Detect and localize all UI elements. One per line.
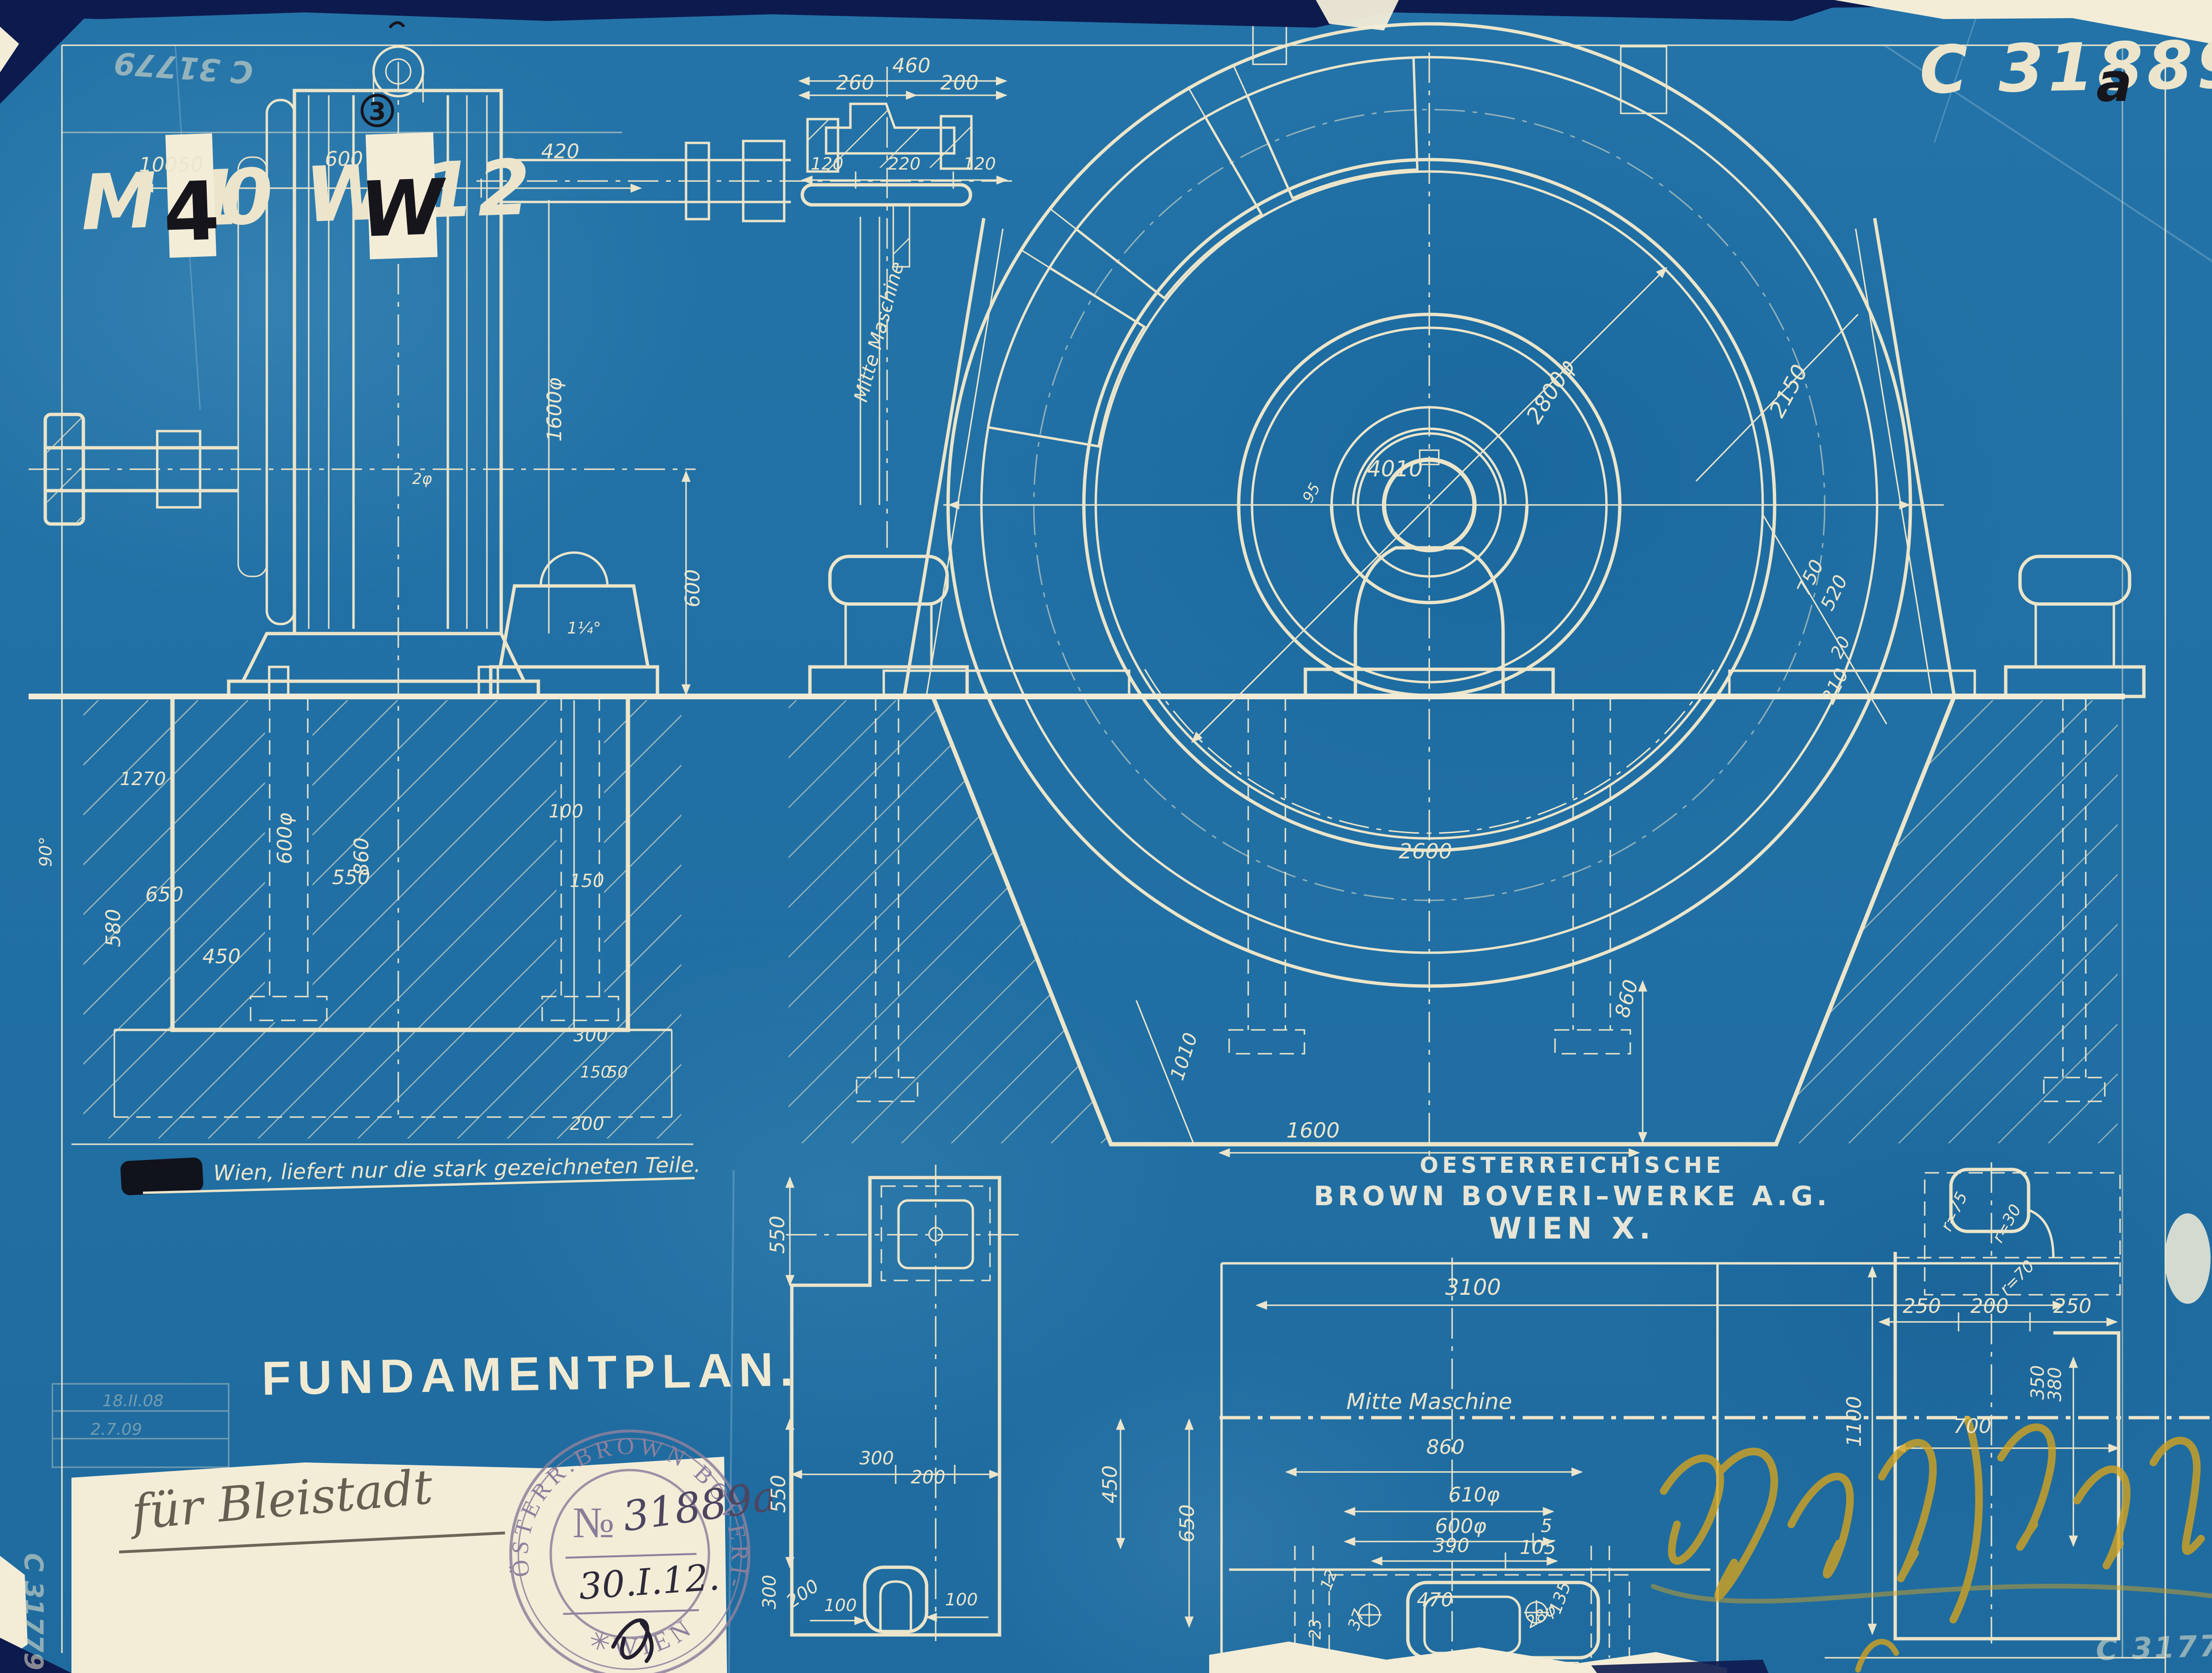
pencil-revision-notes: 18.II.08 2.7.09 <box>52 1384 229 1467</box>
redacted-ink-blob <box>120 1157 204 1196</box>
dim-label-side-view: 200 <box>570 1113 605 1134</box>
dim-label-plan-right: r=30 <box>1989 1201 2026 1246</box>
dim-label-side-view: 100 <box>139 153 177 176</box>
dim-label-plan-center: 650 <box>1175 1504 1199 1542</box>
dim-label-side-view: 2φ <box>412 470 432 488</box>
dim-label-plan-center: 860 <box>1426 1435 1465 1459</box>
dim-label-side-view: 600 <box>681 569 704 607</box>
dim-label-plan-left: 200 <box>782 1575 823 1613</box>
dim-label-plan-right: 380 <box>2044 1367 2065 1402</box>
dim-label-plan-right: 1100 <box>1842 1396 1866 1447</box>
dim-label-side-view: 150 <box>570 870 605 891</box>
dim-label-detail: 120 <box>811 154 844 174</box>
dim-label-plan-center: 610φ <box>1448 1483 1500 1506</box>
revision-date-1: 18.II.08 <box>102 1391 163 1411</box>
dim-label-plan-center: 3100 <box>1445 1274 1501 1300</box>
dim-label-plan-left: 300 <box>759 1575 780 1610</box>
company-line-1: OESTERREICHISCHE <box>1420 1152 1725 1178</box>
dim-label-side-view: 1600φ <box>543 377 566 442</box>
paper-stain <box>2165 1213 2211 1304</box>
dim-label-plan-left: 100 <box>945 1590 978 1610</box>
circled-note-text: 3 <box>369 98 386 126</box>
dim-label-detail: 460 <box>892 54 930 77</box>
dim-label-side-view: 300 <box>574 1025 608 1046</box>
dimension-lines-plan-left <box>790 1178 1000 1621</box>
dim-label-plan-center: 600φ <box>1435 1514 1486 1538</box>
dim-label-plan-right: 700 <box>1953 1414 1991 1438</box>
left-bearing-pedestal <box>810 556 967 696</box>
dim-label-plan-right: 250 <box>1903 1294 1941 1318</box>
dim-label-front-view: 2800φ <box>1521 355 1580 428</box>
dim-label-front-view: 1600 <box>1286 1119 1340 1143</box>
dim-label-front-view: 2150 <box>1764 360 1813 422</box>
dim-label-side-view: 150 <box>580 1063 611 1082</box>
stamp-number-prefix: № <box>573 1498 615 1547</box>
dim-label-plan-right: 200 <box>1970 1294 2009 1318</box>
revision-date-2: 2.7.09 <box>91 1420 142 1439</box>
pole-segments <box>988 58 1417 446</box>
page-title: FUNDAMENTPLAN. <box>261 1342 800 1405</box>
dim-label-plan-left: 550 <box>766 1216 789 1254</box>
dim-label-side-view: 600φ <box>273 813 296 864</box>
dim-label-plan-center: 470 <box>1417 1589 1453 1611</box>
shaft-detail-section: Mitte Maschine <box>799 67 1007 548</box>
dim-label-plan-center: 450 <box>1098 1465 1121 1503</box>
centerline-label-main: Mitte Maschine <box>1346 1389 1512 1414</box>
dim-label-plan-center: 105 <box>1520 1537 1556 1559</box>
dimension-lines-plan-right <box>1872 1267 2119 1634</box>
dim-label-plan-left: 300 <box>859 1448 894 1469</box>
dim-label-side-view: 100 <box>549 801 584 822</box>
dim-label-side-view: 50 <box>178 153 203 176</box>
dim-label-plan-left: 100 <box>824 1596 857 1615</box>
dim-label-plan-center: 135 <box>1545 1579 1575 1617</box>
company-perforation-mark: OESTERREICHISCHE BROWN BOVERI–WERKE A.G.… <box>1313 1152 1830 1246</box>
dim-label-plan-left: 200 <box>911 1467 946 1488</box>
dim-label-plan-left: 550 <box>767 1475 790 1513</box>
corner-code-bottom-right: C 31779 <box>2095 1627 2212 1667</box>
patch-digit: 4 <box>162 164 221 260</box>
dim-label-front-view: 860 <box>1610 977 1643 1020</box>
dim-label-detail: 200 <box>940 71 979 94</box>
dim-label-side-view: 420 <box>541 140 579 163</box>
sheet-number-suffix: a <box>2096 52 2132 114</box>
dim-label-side-view: 1¼° <box>567 619 601 638</box>
dim-label-front-view: 2600 <box>1399 839 1452 864</box>
foundation-plan-left <box>786 1165 1020 1641</box>
dim-label-detail: 120 <box>963 154 996 174</box>
patch-letter: W <box>358 162 448 254</box>
edge-code-left: C 31779 <box>19 1553 49 1670</box>
dim-label-front-view: 95 <box>1299 480 1324 505</box>
sheet-number: C 31889 <box>1919 26 2212 109</box>
corner-code-inverted: C 31779 <box>113 45 254 90</box>
dim-label-plan-center: 23 <box>1306 1619 1325 1639</box>
dim-label-front-view: 4010 <box>1367 456 1423 482</box>
dim-label-side-view: 90° <box>36 836 56 867</box>
dim-label-plan-center: 37 <box>1344 1607 1369 1633</box>
dim-label-plan-center: 390 <box>1433 1535 1469 1557</box>
dim-label-side-view: 600 <box>325 147 363 171</box>
dim-label-side-view: 860 <box>350 837 373 876</box>
dim-label-side-view: 450 <box>202 945 241 968</box>
delivery-note: Wien, liefert nur die stark gezeichneten… <box>120 1152 701 1196</box>
dim-label-plan-right: 250 <box>2053 1294 2091 1318</box>
dim-label-detail: 220 <box>888 154 921 174</box>
blueprint-sheet: Mitte Maschine <box>0 0 2212 1673</box>
dim-label-front-view: 1010 <box>1166 1030 1202 1083</box>
dim-label-side-view: 1270 <box>120 768 166 789</box>
dim-label-detail: 260 <box>836 71 874 94</box>
drawing-canvas: Mitte Maschine <box>0 0 2212 1673</box>
company-line-2: BROWN BOVERI–WERKE A.G. <box>1313 1181 1830 1212</box>
dim-label-side-view: 650 <box>145 883 183 906</box>
dim-label-side-view: 580 <box>101 909 125 947</box>
dim-label-plan-center: 5 <box>1541 1515 1552 1536</box>
dim-label-side-view: 50 <box>607 1063 627 1082</box>
company-line-3: WIEN X. <box>1489 1211 1656 1246</box>
dim-label-plan-right: r=75 <box>1937 1189 1971 1234</box>
